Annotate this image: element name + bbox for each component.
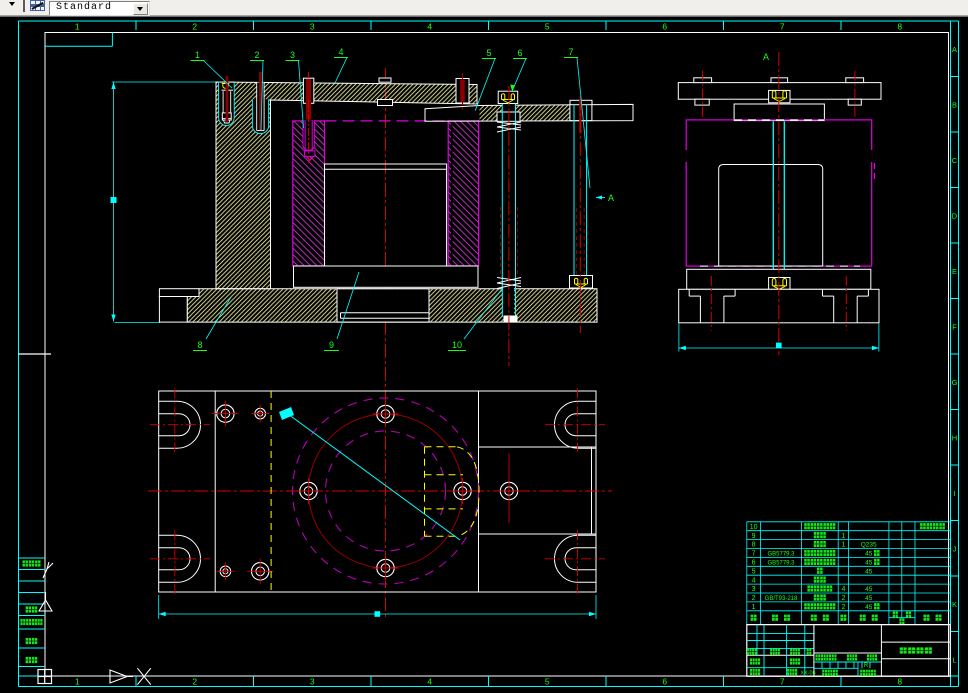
- svg-text:G: G: [952, 378, 958, 387]
- svg-text:F: F: [952, 322, 957, 331]
- svg-text:8: 8: [897, 22, 902, 32]
- svg-text:5: 5: [752, 568, 756, 575]
- svg-text:J: J: [953, 544, 957, 553]
- svg-text:5: 5: [545, 677, 550, 687]
- svg-text:45: 45: [865, 604, 873, 611]
- svg-text:A: A: [763, 52, 769, 62]
- svg-text:8: 8: [197, 340, 202, 350]
- svg-text:2: 2: [752, 595, 756, 602]
- svg-text:I: I: [953, 489, 955, 498]
- svg-text:6: 6: [662, 677, 667, 687]
- svg-text:4: 4: [752, 577, 756, 584]
- svg-text:5: 5: [486, 48, 491, 58]
- svg-text:L: L: [952, 655, 956, 664]
- svg-text:10: 10: [750, 524, 758, 531]
- svg-text:45: 45: [865, 595, 873, 602]
- svg-text:2: 2: [192, 677, 197, 687]
- svg-text:A: A: [952, 45, 957, 54]
- svg-text:R: R: [864, 663, 869, 669]
- svg-text:H: H: [952, 433, 957, 442]
- svg-text:7: 7: [780, 677, 785, 687]
- svg-text:A: A: [608, 193, 614, 203]
- svg-text:1: 1: [841, 533, 845, 540]
- svg-text:C: C: [952, 156, 958, 165]
- svg-text:GB/T93-218: GB/T93-218: [765, 596, 798, 602]
- svg-text:4: 4: [338, 47, 343, 57]
- svg-text:K: K: [952, 600, 957, 609]
- svg-text:1: 1: [841, 542, 845, 549]
- svg-text:7: 7: [752, 551, 756, 558]
- svg-text:3: 3: [290, 50, 295, 60]
- svg-text:9: 9: [329, 340, 334, 350]
- svg-text:2: 2: [841, 604, 845, 611]
- svg-text:5: 5: [545, 22, 550, 32]
- svg-text:B: B: [952, 100, 957, 109]
- svg-text:3: 3: [752, 586, 756, 593]
- svg-text:45: 45: [865, 586, 873, 593]
- svg-text:45: 45: [865, 568, 873, 575]
- svg-text:8: 8: [752, 542, 756, 549]
- svg-text:3: 3: [310, 677, 315, 687]
- svg-text:9: 9: [752, 533, 756, 540]
- svg-text:7: 7: [780, 22, 785, 32]
- svg-text:4: 4: [427, 677, 432, 687]
- svg-text:1: 1: [75, 22, 80, 32]
- svg-text:2: 2: [192, 22, 197, 32]
- svg-text:6: 6: [662, 22, 667, 32]
- svg-text:45: 45: [865, 559, 873, 566]
- svg-text:4: 4: [841, 586, 845, 593]
- svg-text:45: 45: [865, 551, 873, 558]
- svg-text:GB5779.3: GB5779.3: [767, 551, 795, 557]
- svg-text:XX-06: XX-06: [800, 670, 815, 676]
- svg-text:GB5779.3: GB5779.3: [767, 560, 795, 566]
- svg-text:1: 1: [195, 50, 200, 60]
- svg-text:10: 10: [452, 340, 462, 350]
- svg-text:E: E: [952, 267, 957, 276]
- svg-text:D: D: [952, 211, 958, 220]
- svg-text:Q235: Q235: [861, 542, 877, 549]
- svg-text:4: 4: [427, 22, 432, 32]
- svg-text:1: 1: [75, 677, 80, 687]
- svg-text:2: 2: [254, 50, 259, 60]
- svg-text:7: 7: [568, 47, 573, 57]
- svg-text:6: 6: [752, 559, 756, 566]
- svg-text:2: 2: [841, 595, 845, 602]
- svg-text:1: 1: [752, 604, 756, 611]
- svg-text:6: 6: [517, 48, 522, 58]
- svg-text:8: 8: [897, 677, 902, 687]
- svg-text:3: 3: [310, 22, 315, 32]
